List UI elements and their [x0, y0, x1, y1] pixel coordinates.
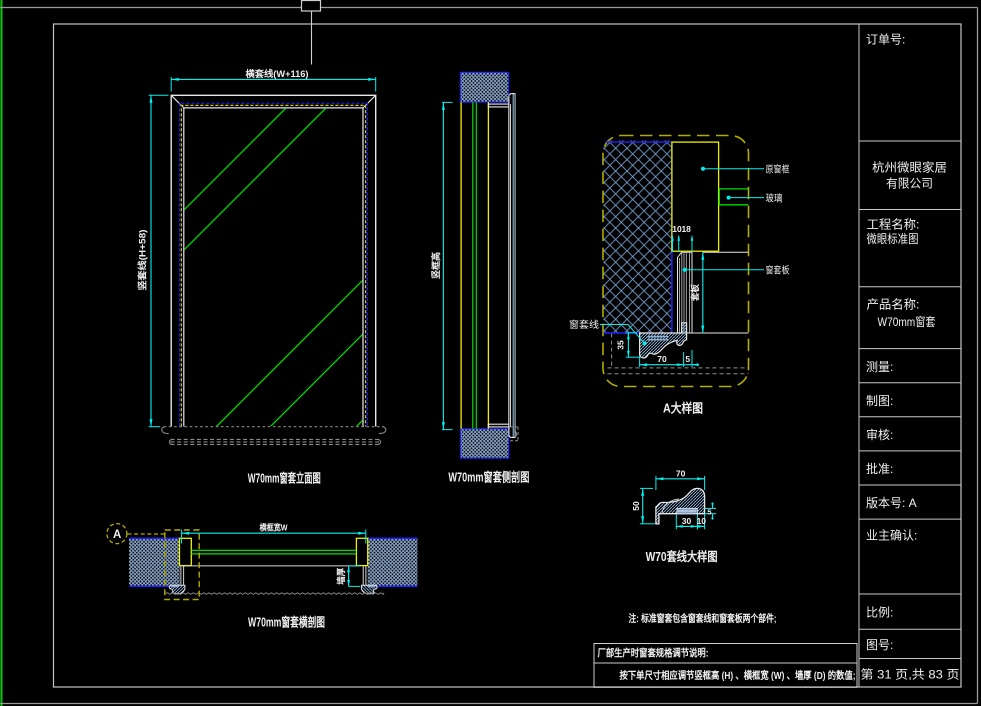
svg-text:图号:: 图号:	[866, 638, 893, 652]
svg-text:原窗框: 原窗框	[766, 164, 790, 176]
svg-text:A: A	[113, 529, 121, 541]
svg-text:比例:: 比例:	[866, 606, 893, 620]
svg-text:工程名称:: 工程名称:	[867, 217, 920, 232]
svg-text:W70mm窗套横剖图: W70mm窗套横剖图	[248, 615, 325, 630]
svg-text:批准:: 批准:	[866, 461, 893, 476]
svg-text:5: 5	[685, 354, 690, 364]
svg-text:W70套线大样图: W70套线大样图	[646, 549, 718, 564]
svg-text:厂部生产时窗套规格调节说明:: 厂部生产时窗套规格调节说明:	[598, 647, 709, 660]
svg-text:微眼标准图: 微眼标准图	[867, 232, 919, 246]
svg-text:竖框高: 竖框高	[430, 252, 441, 279]
svg-text:10: 10	[697, 516, 707, 526]
svg-text:注: 标准窗套包含窗套线和窗套板两个部件;: 注: 标准窗套包含窗套线和窗套板两个部件;	[629, 612, 777, 625]
svg-text:竖套线(H+58): 竖套线(H+58)	[136, 230, 147, 291]
svg-text:W70mm窗套: W70mm窗套	[878, 315, 936, 329]
svg-text:测量:: 测量:	[866, 360, 893, 374]
svg-text:窗套板: 窗套板	[766, 265, 790, 277]
svg-text:墙厚: 墙厚	[336, 567, 346, 585]
svg-text:35: 35	[616, 340, 626, 350]
svg-text:70: 70	[657, 354, 667, 364]
svg-text:套板: 套板	[690, 284, 700, 302]
svg-text:横套线(W+116): 横套线(W+116)	[246, 68, 309, 79]
svg-text:横框宽W: 横框宽W	[259, 523, 289, 533]
svg-text:审核:: 审核:	[866, 427, 893, 442]
svg-text:业主确认:: 业主确认:	[866, 529, 917, 543]
svg-text:版本号: A: 版本号: A	[866, 496, 917, 510]
svg-text:W70mm窗套立面图: W70mm窗套立面图	[248, 471, 321, 486]
svg-text:50: 50	[631, 501, 641, 511]
svg-text:有限公司: 有限公司	[886, 176, 933, 190]
svg-text:杭州微眼家居: 杭州微眼家居	[872, 160, 947, 175]
svg-text:制图:: 制图:	[866, 394, 893, 408]
svg-text:70: 70	[676, 468, 686, 478]
svg-text:第 31 页,共 83 页: 第 31 页,共 83 页	[861, 668, 960, 682]
svg-text:订单号:: 订单号:	[866, 33, 905, 47]
svg-text:W70mm窗套侧剖图: W70mm窗套侧剖图	[448, 470, 529, 485]
svg-text:30: 30	[682, 516, 692, 526]
svg-text:18: 18	[681, 224, 691, 234]
svg-text:5: 5	[707, 507, 711, 516]
svg-text:玻璃: 玻璃	[766, 193, 783, 205]
svg-text:产品名称:: 产品名称:	[867, 296, 920, 311]
svg-text:窗套线: 窗套线	[569, 319, 600, 331]
svg-text:A大样图: A大样图	[663, 401, 703, 416]
svg-text:按下单尺寸相应调节竖框高 (H) 、横框宽 (W) 、墙厚: 按下单尺寸相应调节竖框高 (H) 、横框宽 (W) 、墙厚 (D) 的数值;	[620, 669, 856, 682]
